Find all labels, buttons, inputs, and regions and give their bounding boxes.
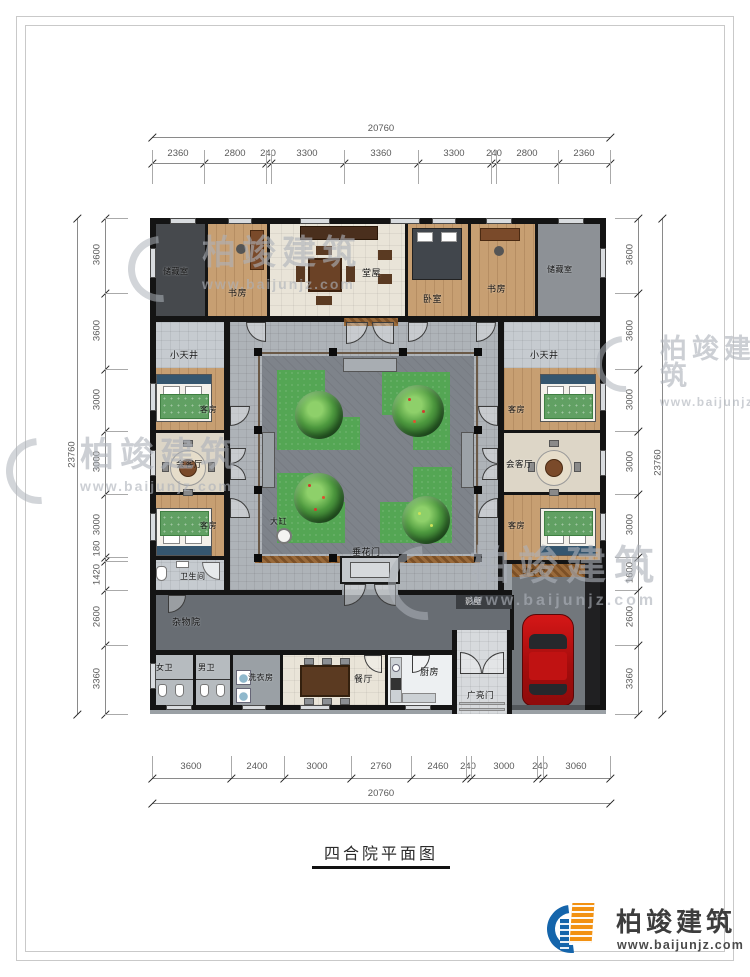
interior-wall [193, 655, 196, 705]
gate-step [459, 702, 505, 705]
window [390, 218, 420, 224]
interior-wall [468, 222, 471, 318]
column-dot [474, 348, 482, 356]
tree [295, 391, 343, 439]
room-label: 堂屋 [362, 266, 381, 279]
dim-extension-line [105, 494, 128, 495]
room-label: 书房 [228, 286, 247, 299]
brand-name: 柏竣建筑 [616, 902, 736, 939]
hall-altar-cabinet [300, 226, 378, 240]
room-label: 影壁 [465, 596, 482, 607]
bed-quilt [544, 394, 593, 419]
tree-highlight [430, 524, 433, 527]
parlor-chair [208, 462, 215, 472]
column-dot [474, 486, 482, 494]
dining-chair [322, 658, 332, 665]
toilet [216, 684, 225, 697]
brand-logo-icon [545, 897, 611, 963]
dim-label: 2360 [167, 148, 188, 159]
column-dot [254, 554, 262, 562]
dim-extension-line [615, 645, 638, 646]
dim-extension-line [105, 590, 128, 591]
study-desk [250, 230, 264, 270]
wc-partition [152, 679, 193, 680]
kitchen-stove [391, 678, 401, 690]
hall-chair [316, 296, 332, 305]
window [300, 705, 330, 710]
parlor-chair [162, 462, 169, 472]
room-label: 客房 [508, 404, 525, 415]
dim-extension-line [466, 756, 467, 778]
bench-east [461, 432, 474, 488]
window [600, 248, 606, 278]
parlor-chair [574, 462, 581, 472]
dim-label: 3300 [443, 148, 464, 159]
window [405, 705, 431, 710]
dim-top-total: 20760 [368, 123, 394, 134]
dim-line-top-total [152, 137, 610, 138]
dim-label: 3000 [306, 761, 327, 772]
tree [392, 385, 444, 437]
toilet [200, 684, 209, 697]
dim-extension-line [271, 150, 272, 184]
brand-website: www.baijunjz.com [617, 938, 744, 952]
room-label: 停车位 [522, 566, 546, 577]
dim-label: 2800 [224, 148, 245, 159]
logo-building-orange [570, 903, 595, 943]
window [558, 218, 584, 224]
window [600, 383, 606, 411]
dining-chair [304, 698, 314, 705]
dim-label: 2800 [516, 148, 537, 159]
window [600, 513, 606, 541]
dining-chair [340, 698, 350, 705]
window [150, 450, 156, 476]
dim-extension-line [105, 431, 128, 432]
column-dot [474, 426, 482, 434]
column-dot [254, 426, 262, 434]
lightwell-right-floor [504, 322, 600, 368]
window [150, 383, 156, 411]
dim-label: 2460 [427, 761, 448, 772]
window [228, 218, 252, 224]
dim-label: 3600 [625, 233, 636, 277]
window [432, 218, 456, 224]
dim-label: 2360 [573, 148, 594, 159]
dim-extension-line [615, 714, 638, 715]
dim-label: 240 [486, 148, 502, 159]
dim-extension-line [411, 756, 412, 778]
dim-bottom-total: 20760 [368, 788, 394, 799]
parlor-chair [183, 489, 193, 496]
room-label: 客房 [200, 404, 217, 415]
logo-building-blue [560, 919, 569, 949]
bed-headboard [541, 375, 595, 384]
car-roof [529, 652, 567, 680]
parlor-chair [549, 440, 559, 447]
dining-chair [340, 658, 350, 665]
dim-extension-line [471, 756, 472, 778]
column-dot [474, 554, 482, 562]
hall-table [308, 258, 342, 292]
room-label: 卧室 [423, 292, 442, 305]
dim-extension-line [543, 756, 544, 778]
gate-wall [452, 630, 457, 714]
room-label: 小天井 [530, 348, 559, 361]
dim-extension-line [105, 218, 128, 219]
dining-chair [304, 658, 314, 665]
column-dot [399, 348, 407, 356]
car-rear-window [529, 684, 567, 695]
room-label: 卫生间 [180, 571, 206, 582]
room-label: 厨房 [420, 665, 439, 678]
interior-wall [535, 222, 538, 318]
dim-label: 3000 [92, 378, 103, 422]
dim-right-total: 23760 [653, 441, 664, 485]
interior-wall [230, 655, 233, 705]
tree-blossom [314, 508, 317, 511]
drawing-title-underline [312, 866, 450, 869]
dim-left-total: 23760 [67, 433, 78, 477]
interior-wall [152, 556, 224, 560]
bed-pillow [417, 232, 433, 242]
toilet [156, 566, 167, 581]
room-label: 会客厅 [176, 458, 203, 470]
column-dot [329, 348, 337, 356]
dim-label: 3000 [625, 440, 636, 484]
bed-headboard [157, 375, 211, 384]
dim-label: 240 [260, 148, 276, 159]
study-desk [480, 228, 520, 241]
dim-label: 3000 [92, 440, 103, 484]
dim-label: 3360 [370, 148, 391, 159]
dim-line-top-segments [152, 163, 610, 164]
dim-extension-line [105, 645, 128, 646]
tree [294, 473, 344, 523]
column-dot [254, 348, 262, 356]
dim-extension-line [615, 494, 638, 495]
parlor-table [545, 459, 563, 477]
room-label: 男卫 [198, 662, 215, 673]
window [600, 450, 606, 476]
interior-wall [405, 222, 408, 318]
tree-blossom [413, 420, 416, 423]
festoon-gate-passage [350, 562, 390, 578]
bed-pillow [441, 232, 457, 242]
lightwell-left-floor [152, 322, 224, 368]
dim-extension-line [284, 756, 285, 778]
column-dot [329, 554, 337, 562]
dim-extension-line [418, 150, 419, 184]
room-label: 洗衣房 [248, 672, 274, 683]
column-dot [254, 486, 262, 494]
water-vat [276, 528, 292, 544]
wc-partition [196, 679, 230, 680]
room-label: 广亮门 [467, 689, 494, 701]
dim-extension-line [615, 557, 638, 558]
dim-label: 2600 [625, 595, 636, 639]
window [150, 513, 156, 541]
tree-highlight [418, 512, 421, 515]
dim-extension-line [558, 150, 559, 184]
hall-entrance-platform [343, 358, 397, 372]
car-windshield [529, 634, 567, 649]
dim-label: 240 [532, 761, 548, 772]
bed [540, 374, 596, 422]
dim-label: 3000 [493, 761, 514, 772]
veranda-step-right [400, 556, 480, 563]
drawing-title: 四合院平面图 [300, 840, 462, 864]
parlor-chair [549, 489, 559, 496]
dim-extension-line [537, 756, 538, 778]
dining-chair [322, 698, 332, 705]
dim-label: 240 [460, 761, 476, 772]
dim-extension-line [351, 756, 352, 778]
hall-chair [346, 266, 355, 282]
garage-door [512, 705, 585, 710]
dim-extension-line [615, 369, 638, 370]
interior-wall [205, 222, 208, 318]
drawing-sheet: { "title": "四合院平面图", "logo": { "brand": … [0, 0, 750, 977]
bed [156, 508, 212, 556]
kitchen-counter [402, 693, 436, 703]
tree-blossom [422, 410, 425, 413]
dim-line-bottom-total [152, 803, 610, 804]
dim-extension-line [105, 369, 128, 370]
kitchen-sink [392, 664, 400, 672]
room-label: 客房 [200, 520, 217, 531]
sink [176, 561, 189, 568]
dim-label: 3360 [92, 657, 103, 701]
toilet [158, 684, 167, 697]
tree-blossom [408, 398, 411, 401]
dim-label: 3600 [180, 761, 201, 772]
bed-headboard [157, 546, 211, 555]
interior-wall [152, 430, 224, 433]
interior-wall [385, 655, 388, 705]
room-label: 客房 [508, 520, 525, 531]
dim-extension-line [615, 590, 638, 591]
dim-label: 3360 [625, 657, 636, 701]
room-label: 杂物院 [172, 615, 201, 628]
dim-extension-line [615, 218, 638, 219]
dim-extension-line [152, 756, 153, 778]
tree [402, 496, 450, 544]
veranda-step-left [255, 556, 340, 563]
dim-extension-line [615, 431, 638, 432]
interior-wall [280, 655, 283, 705]
dim-extension-line [496, 150, 497, 184]
dim-label: 1420 [92, 553, 103, 597]
study-chair [494, 246, 504, 256]
room-label: 女卫 [156, 662, 173, 673]
room-label: 储藏室 [547, 264, 573, 275]
dim-label: 3000 [625, 378, 636, 422]
dim-extension-line [231, 756, 232, 778]
window [170, 218, 196, 224]
floor-plan: 储藏室 书房 堂屋 卧室 书房 储藏室 小天井 小天井 客房 会客厅 客房 客房… [150, 218, 606, 714]
dim-label: 2760 [370, 761, 391, 772]
dim-label: 3600 [625, 309, 636, 353]
dim-label: 3300 [296, 148, 317, 159]
interior-wall [267, 222, 270, 318]
room-label: 储藏室 [163, 266, 189, 277]
room-label: 书房 [487, 282, 506, 295]
bed-quilt [544, 511, 593, 536]
bed-headboard [541, 546, 595, 555]
dim-label: 2600 [92, 595, 103, 639]
dim-extension-line [105, 561, 128, 562]
dim-extension-line [105, 714, 128, 715]
dining-table [300, 665, 350, 697]
room-label: 大缸 [270, 516, 287, 527]
window [242, 705, 266, 710]
room-label: 垂花门 [352, 545, 381, 558]
window [300, 218, 330, 224]
room-label: 小天井 [170, 348, 199, 361]
dim-extension-line [610, 150, 611, 184]
dim-extension-line [615, 293, 638, 294]
dim-label: 2400 [246, 761, 267, 772]
dim-extension-line [105, 293, 128, 294]
study-chair [236, 244, 246, 254]
interior-wall [498, 322, 504, 590]
window [150, 248, 156, 278]
window [486, 218, 512, 224]
hall-chair [378, 250, 392, 260]
dim-extension-line [204, 150, 205, 184]
dim-extension-line [344, 150, 345, 184]
bench-west [262, 432, 275, 488]
washing-machine [236, 688, 251, 703]
dim-label: 3000 [625, 503, 636, 547]
exterior-wall [585, 705, 606, 710]
room-label: 餐厅 [354, 672, 373, 685]
tree-blossom [308, 484, 311, 487]
dim-label: 3600 [92, 233, 103, 277]
bed [540, 508, 596, 556]
dim-label: 3060 [565, 761, 586, 772]
hall-chair [296, 266, 305, 282]
tree-blossom [322, 496, 325, 499]
toilet [175, 684, 184, 697]
column-dot [399, 554, 407, 562]
parlor-chair [183, 440, 193, 447]
dim-extension-line [152, 150, 153, 184]
interior-wall [152, 650, 454, 655]
window [166, 705, 192, 710]
interior-wall [504, 430, 600, 433]
gate-step [459, 708, 505, 711]
dim-extension-line [610, 756, 611, 778]
dim-label: 3600 [92, 309, 103, 353]
hall-chair [316, 246, 332, 255]
room-label: 会客厅 [506, 458, 533, 470]
